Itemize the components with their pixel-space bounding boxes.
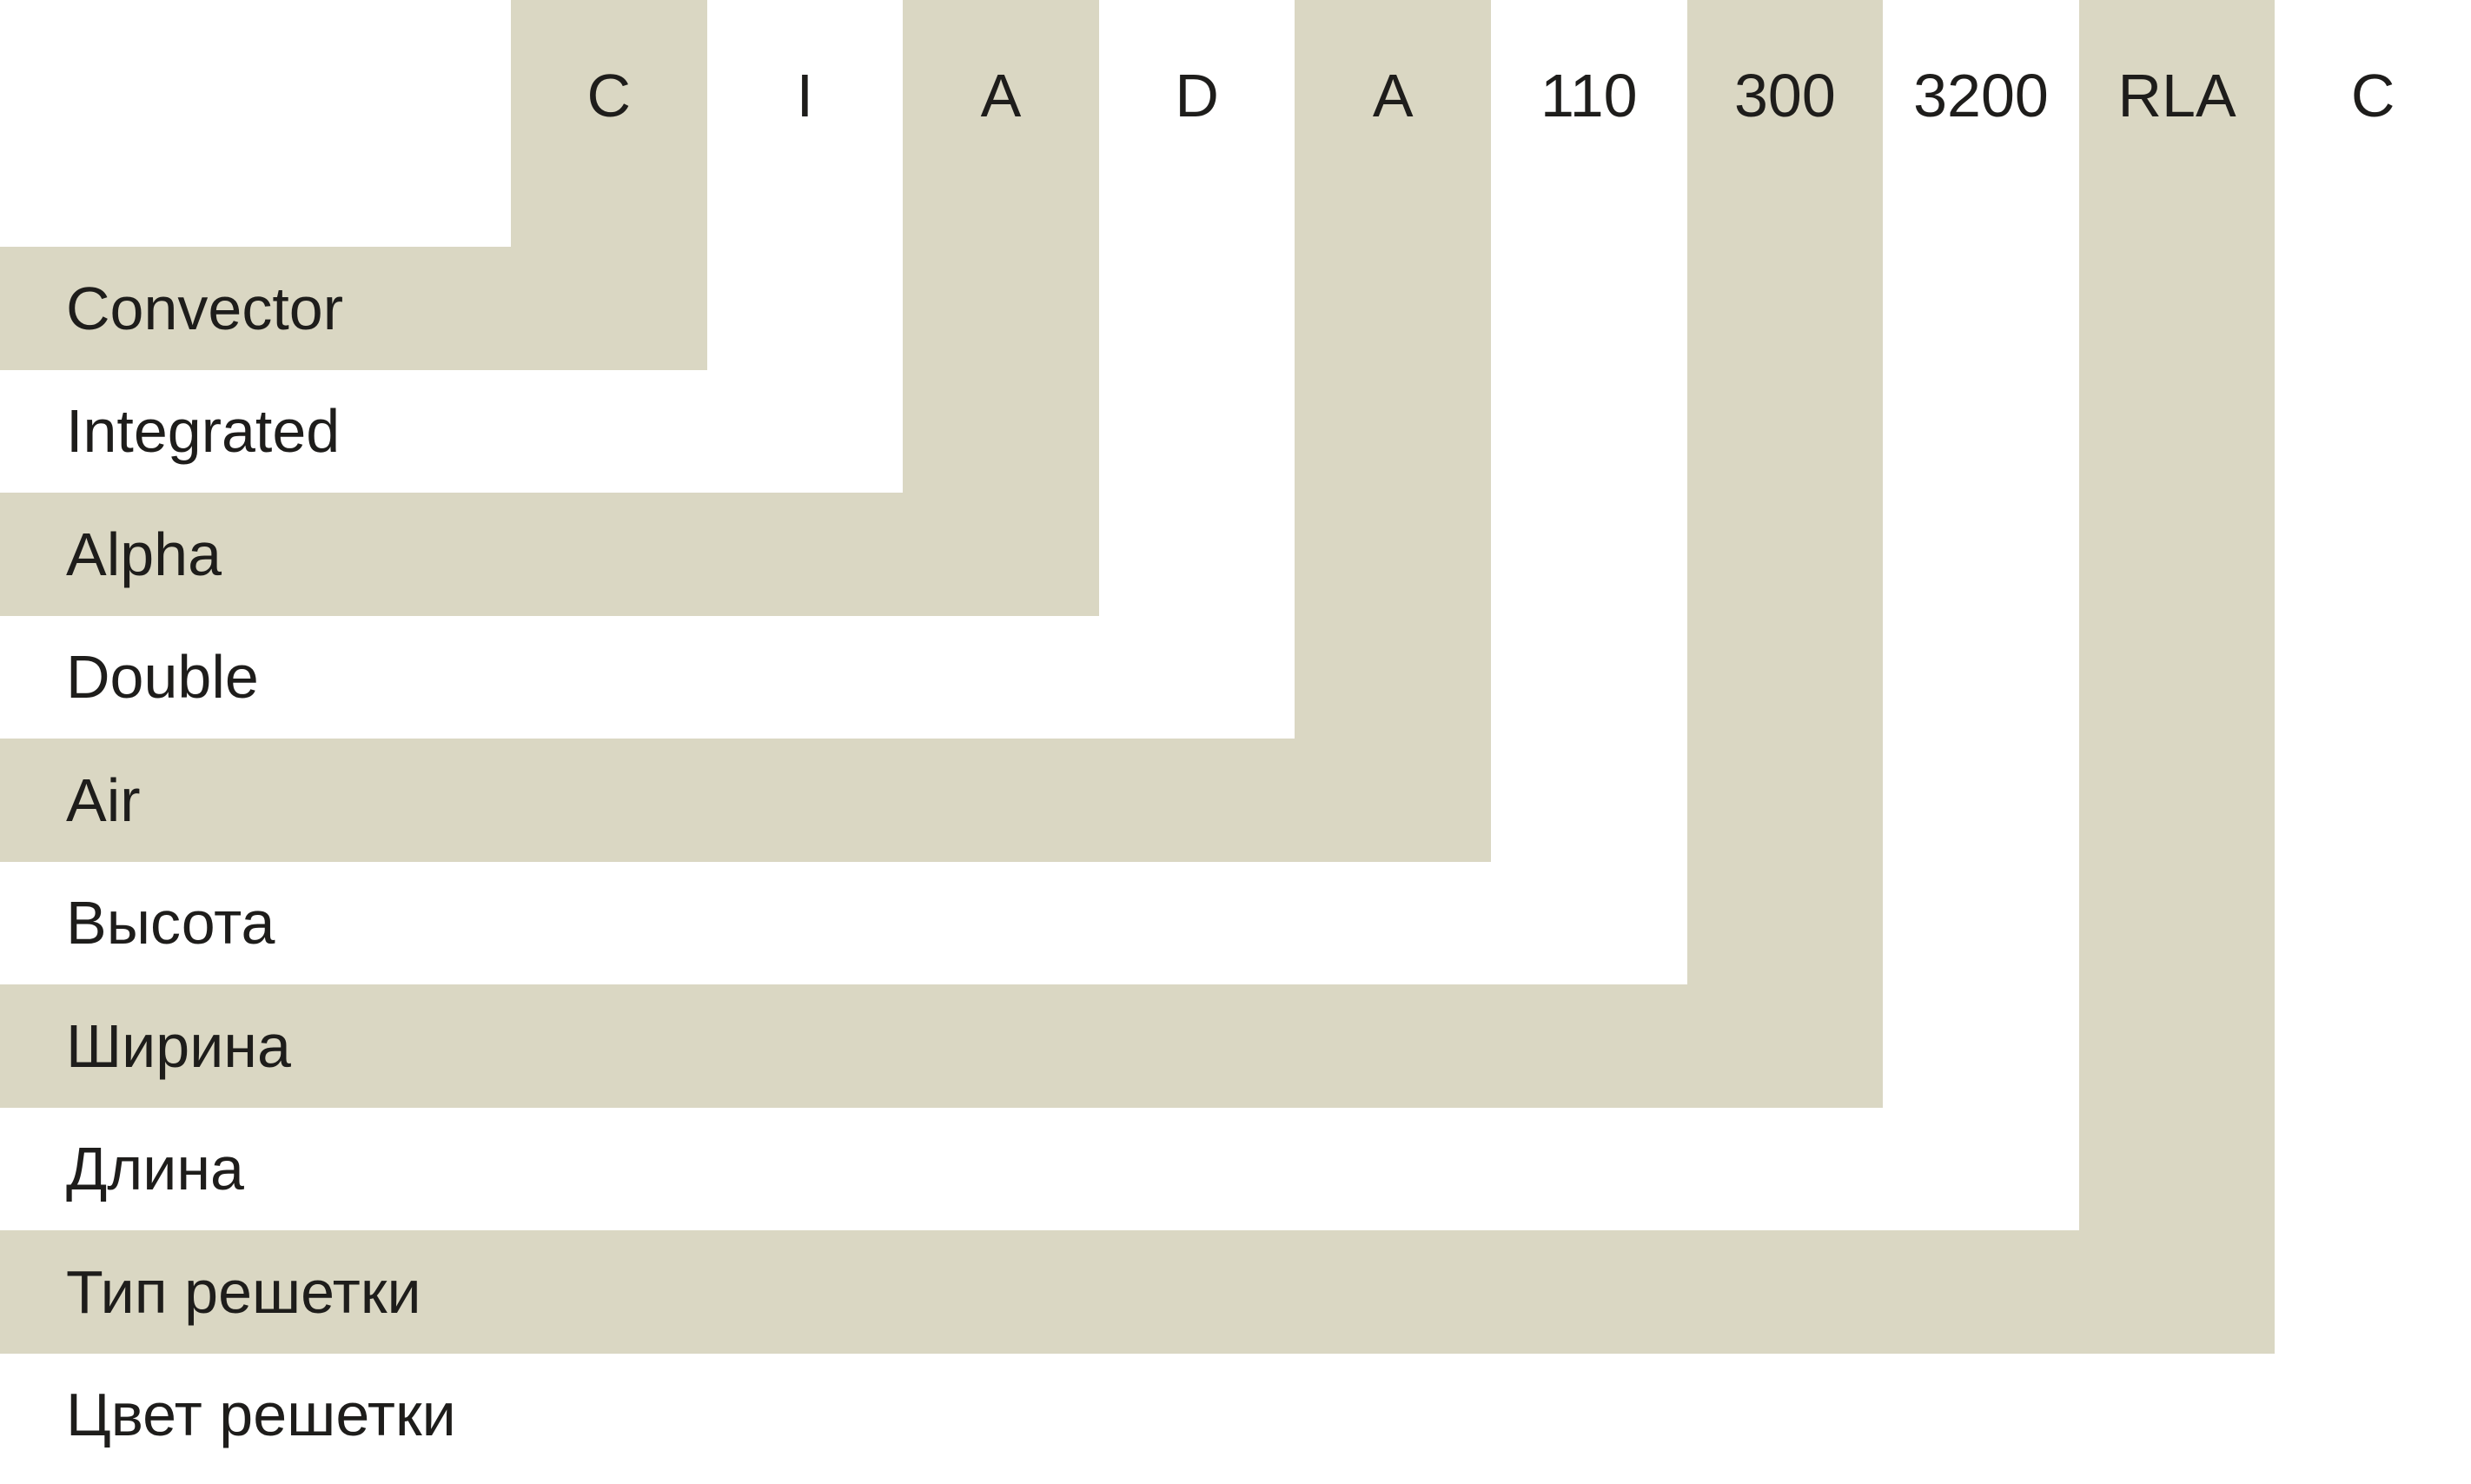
label-double: Double xyxy=(66,616,259,739)
label-length: Длина xyxy=(66,1108,244,1231)
code-integrated: I xyxy=(707,0,904,191)
bar-air xyxy=(0,739,1491,862)
label-width: Ширина xyxy=(66,984,291,1108)
nomenclature-diagram: C I A D A 110 300 3200 RLA C Convector I… xyxy=(0,0,2471,1484)
code-double: D xyxy=(1099,0,1295,191)
bar-length xyxy=(0,1108,2079,1231)
label-height: Высота xyxy=(66,862,275,985)
code-air: A xyxy=(1295,0,1491,191)
label-grille-color: Цвет решетки xyxy=(66,1354,456,1477)
code-grille-type: RLA xyxy=(2079,0,2276,191)
code-convector: C xyxy=(511,0,707,191)
label-convector: Convector xyxy=(66,247,343,370)
code-alpha: A xyxy=(903,0,1099,191)
column-grille-color xyxy=(2275,0,2471,1476)
code-width: 300 xyxy=(1687,0,1884,191)
label-grille-type: Тип решетки xyxy=(66,1230,421,1354)
label-alpha: Alpha xyxy=(66,493,222,616)
code-length: 3200 xyxy=(1883,0,2079,191)
column-grille-type xyxy=(2079,0,2276,1354)
label-air: Air xyxy=(66,739,141,862)
label-integrated: Integrated xyxy=(66,370,340,494)
code-height: 110 xyxy=(1491,0,1687,191)
code-grille-color: C xyxy=(2275,0,2471,191)
